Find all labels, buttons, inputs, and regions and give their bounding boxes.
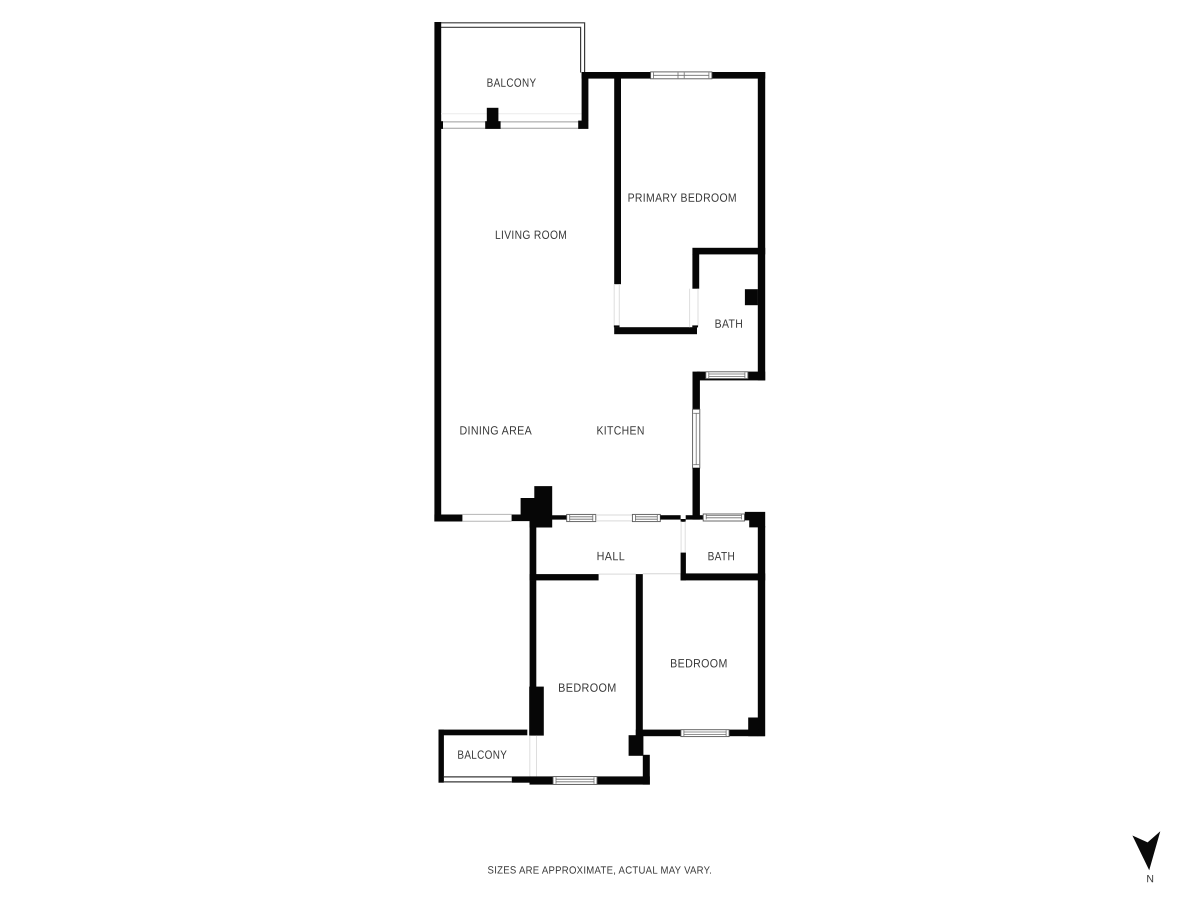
svg-text:PRIMARY BEDROOM: PRIMARY BEDROOM [628,191,737,205]
svg-text:BEDROOM: BEDROOM [670,656,728,670]
svg-text:KITCHEN: KITCHEN [596,423,644,437]
svg-text:BATH: BATH [715,317,744,331]
svg-text:HALL: HALL [597,549,625,563]
svg-text:N: N [1146,873,1154,885]
svg-text:BEDROOM: BEDROOM [558,681,617,695]
svg-text:BALCONY: BALCONY [457,748,507,762]
svg-text:BATH: BATH [708,549,736,563]
svg-text:LIVING ROOM: LIVING ROOM [495,228,567,242]
svg-text:DINING AREA: DINING AREA [460,423,533,437]
svg-text:BALCONY: BALCONY [487,76,537,90]
svg-text:SIZES ARE APPROXIMATE, ACTUAL: SIZES ARE APPROXIMATE, ACTUAL MAY VARY. [488,865,713,877]
